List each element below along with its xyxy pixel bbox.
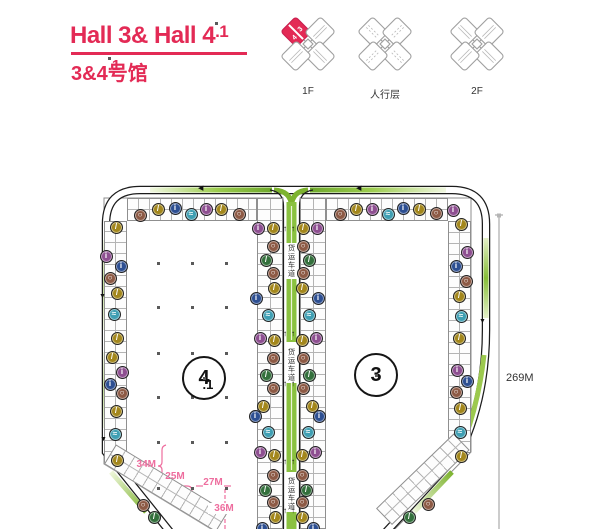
lane-arrow-icon: ↑ xyxy=(283,330,287,338)
dimension-line-269m xyxy=(495,214,503,529)
escalator-icon: / xyxy=(453,290,466,303)
freight-lane-text: 货运车道 xyxy=(286,243,297,279)
lane-arrow-icon: ↑ xyxy=(291,507,295,515)
info-icon: i xyxy=(397,202,410,215)
restroom-icon: i xyxy=(461,246,474,259)
escalator-icon: / xyxy=(215,203,228,216)
road-arrow-icon: ▼ xyxy=(100,436,107,443)
floor-plan-page: Hall 3& Hall 4.1 3&4.1号馆 431F人行层2F xyxy=(0,0,600,529)
info-icon: i xyxy=(450,260,463,273)
info-icon: i xyxy=(461,375,474,388)
restaurant-icon: ○ xyxy=(267,240,280,253)
restroom-icon: i xyxy=(310,332,323,345)
restaurant-icon: ○ xyxy=(116,387,129,400)
column-dot xyxy=(157,306,160,309)
road-arrow-icon: ◀ xyxy=(198,185,203,192)
column-dot xyxy=(191,262,194,265)
stairs-icon: / xyxy=(260,369,273,382)
restaurant-icon: ○ xyxy=(104,272,117,285)
lane-arrow-icon: ↑ xyxy=(291,380,295,388)
restaurant-icon: ○ xyxy=(422,498,435,511)
road-arrow-icon: ▼ xyxy=(479,318,486,325)
info-icon: i xyxy=(115,260,128,273)
column-dot xyxy=(191,306,194,309)
restroom-icon: i xyxy=(100,250,113,263)
restaurant-icon: ○ xyxy=(297,382,310,395)
column-dot xyxy=(157,262,160,265)
info-icon: i xyxy=(250,292,263,305)
lane-arrow-icon: ↑ xyxy=(291,225,295,233)
escalator-icon: / xyxy=(297,222,310,235)
lane-arrow-icon: ↑ xyxy=(291,458,295,466)
water-icon: ≈ xyxy=(109,428,122,441)
lane-arrow-icon: ↑ xyxy=(283,507,287,515)
escalator-icon: / xyxy=(296,334,309,347)
escalator-icon: / xyxy=(296,282,309,295)
column-dot xyxy=(191,441,194,444)
restaurant-icon: ○ xyxy=(334,208,347,221)
restaurant-icon: ○ xyxy=(267,352,280,365)
water-icon: ≈ xyxy=(108,308,121,321)
info-icon: i xyxy=(169,202,182,215)
dim-25m: 25M xyxy=(162,471,188,482)
escalator-icon: / xyxy=(350,203,363,216)
column-dot xyxy=(225,306,228,309)
hall-41-label: 4.1 xyxy=(182,356,226,400)
restaurant-icon: ○ xyxy=(296,496,309,509)
water-icon: ≈ xyxy=(455,310,468,323)
stairs-icon: / xyxy=(260,254,273,267)
restaurant-icon: ○ xyxy=(267,382,280,395)
escalator-icon: / xyxy=(268,449,281,462)
column-dot xyxy=(157,441,160,444)
restaurant-icon: ○ xyxy=(233,208,246,221)
column-dot xyxy=(191,487,194,490)
water-icon: ≈ xyxy=(185,208,198,221)
stairs-icon: / xyxy=(300,484,313,497)
info-icon: i xyxy=(312,292,325,305)
dim-34m: 34M xyxy=(126,459,156,470)
info-icon: i xyxy=(256,522,269,529)
stairs-icon: / xyxy=(259,484,272,497)
restaurant-icon: ○ xyxy=(297,267,310,280)
escalator-icon: / xyxy=(111,454,124,467)
water-icon: ≈ xyxy=(302,426,315,439)
water-icon: ≈ xyxy=(454,426,467,439)
restroom-icon: i xyxy=(311,222,324,235)
water-icon: ≈ xyxy=(262,309,275,322)
restroom-icon: i xyxy=(447,204,460,217)
restaurant-icon: ○ xyxy=(137,499,150,512)
info-icon: i xyxy=(104,378,117,391)
restroom-icon: i xyxy=(252,222,265,235)
column-dot xyxy=(225,352,228,355)
column-dot xyxy=(157,352,160,355)
restroom-icon: i xyxy=(309,446,322,459)
escalator-icon: / xyxy=(110,221,123,234)
restroom-icon: i xyxy=(451,364,464,377)
lane-arrow-icon: ↑ xyxy=(283,225,287,233)
escalator-icon: / xyxy=(296,449,309,462)
stairs-icon: / xyxy=(148,511,161,524)
dim-36m: 36M xyxy=(208,503,240,514)
dim-27m: 27M xyxy=(199,477,227,488)
column-dot xyxy=(191,352,194,355)
escalator-icon: / xyxy=(455,450,468,463)
title-decimal: .1 xyxy=(215,22,218,25)
column-dot xyxy=(157,487,160,490)
restaurant-icon: ○ xyxy=(134,209,147,222)
stairs-icon: / xyxy=(303,254,316,267)
restaurant-icon: ○ xyxy=(267,469,280,482)
restaurant-icon: ○ xyxy=(460,275,473,288)
restaurant-icon: ○ xyxy=(267,267,280,280)
escalator-icon: / xyxy=(111,332,124,345)
info-icon: i xyxy=(313,410,326,423)
lane-arrow-icon: ↑ xyxy=(291,330,295,338)
restroom-icon: i xyxy=(254,332,267,345)
restaurant-icon: ○ xyxy=(297,352,310,365)
lane-arrow-icon: ↑ xyxy=(283,380,287,388)
water-icon: ≈ xyxy=(303,309,316,322)
escalator-icon: / xyxy=(106,351,119,364)
freight-lane-text: 货运车道 xyxy=(286,347,297,383)
hall-3-label: 3 xyxy=(354,353,398,397)
escalator-icon: / xyxy=(152,203,165,216)
water-icon: ≈ xyxy=(382,208,395,221)
stairs-icon: / xyxy=(403,511,416,524)
escalator-icon: / xyxy=(267,222,280,235)
road-arrow-icon: ◀ xyxy=(356,185,361,192)
restroom-icon: i xyxy=(200,203,213,216)
escalator-icon: / xyxy=(455,218,468,231)
escalator-icon: / xyxy=(413,203,426,216)
restaurant-icon: ○ xyxy=(430,207,443,220)
column-dot xyxy=(157,396,160,399)
stairs-icon: / xyxy=(303,369,316,382)
restaurant-icon: ○ xyxy=(450,386,463,399)
info-icon: i xyxy=(249,410,262,423)
lane-arrow-icon: ↑ xyxy=(283,458,287,466)
column-dot xyxy=(225,262,228,265)
restaurant-icon: ○ xyxy=(267,496,280,509)
escalator-icon: / xyxy=(111,287,124,300)
dim-269m: 269M xyxy=(506,372,534,384)
restaurant-icon: ○ xyxy=(296,469,309,482)
info-icon: i xyxy=(307,522,320,529)
water-icon: ≈ xyxy=(262,426,275,439)
restroom-icon: i xyxy=(366,203,379,216)
escalator-icon: / xyxy=(268,334,281,347)
escalator-icon: / xyxy=(453,332,466,345)
road-arrow-icon: ▼ xyxy=(99,293,106,300)
column-dot xyxy=(225,441,228,444)
escalator-icon: / xyxy=(268,282,281,295)
escalator-icon: / xyxy=(296,511,309,524)
escalator-icon: / xyxy=(110,405,123,418)
escalator-icon: / xyxy=(454,402,467,415)
restroom-icon: i xyxy=(254,446,267,459)
restaurant-icon: ○ xyxy=(297,240,310,253)
restroom-icon: i xyxy=(116,366,129,379)
escalator-icon: / xyxy=(269,511,282,524)
column-dot xyxy=(225,396,228,399)
